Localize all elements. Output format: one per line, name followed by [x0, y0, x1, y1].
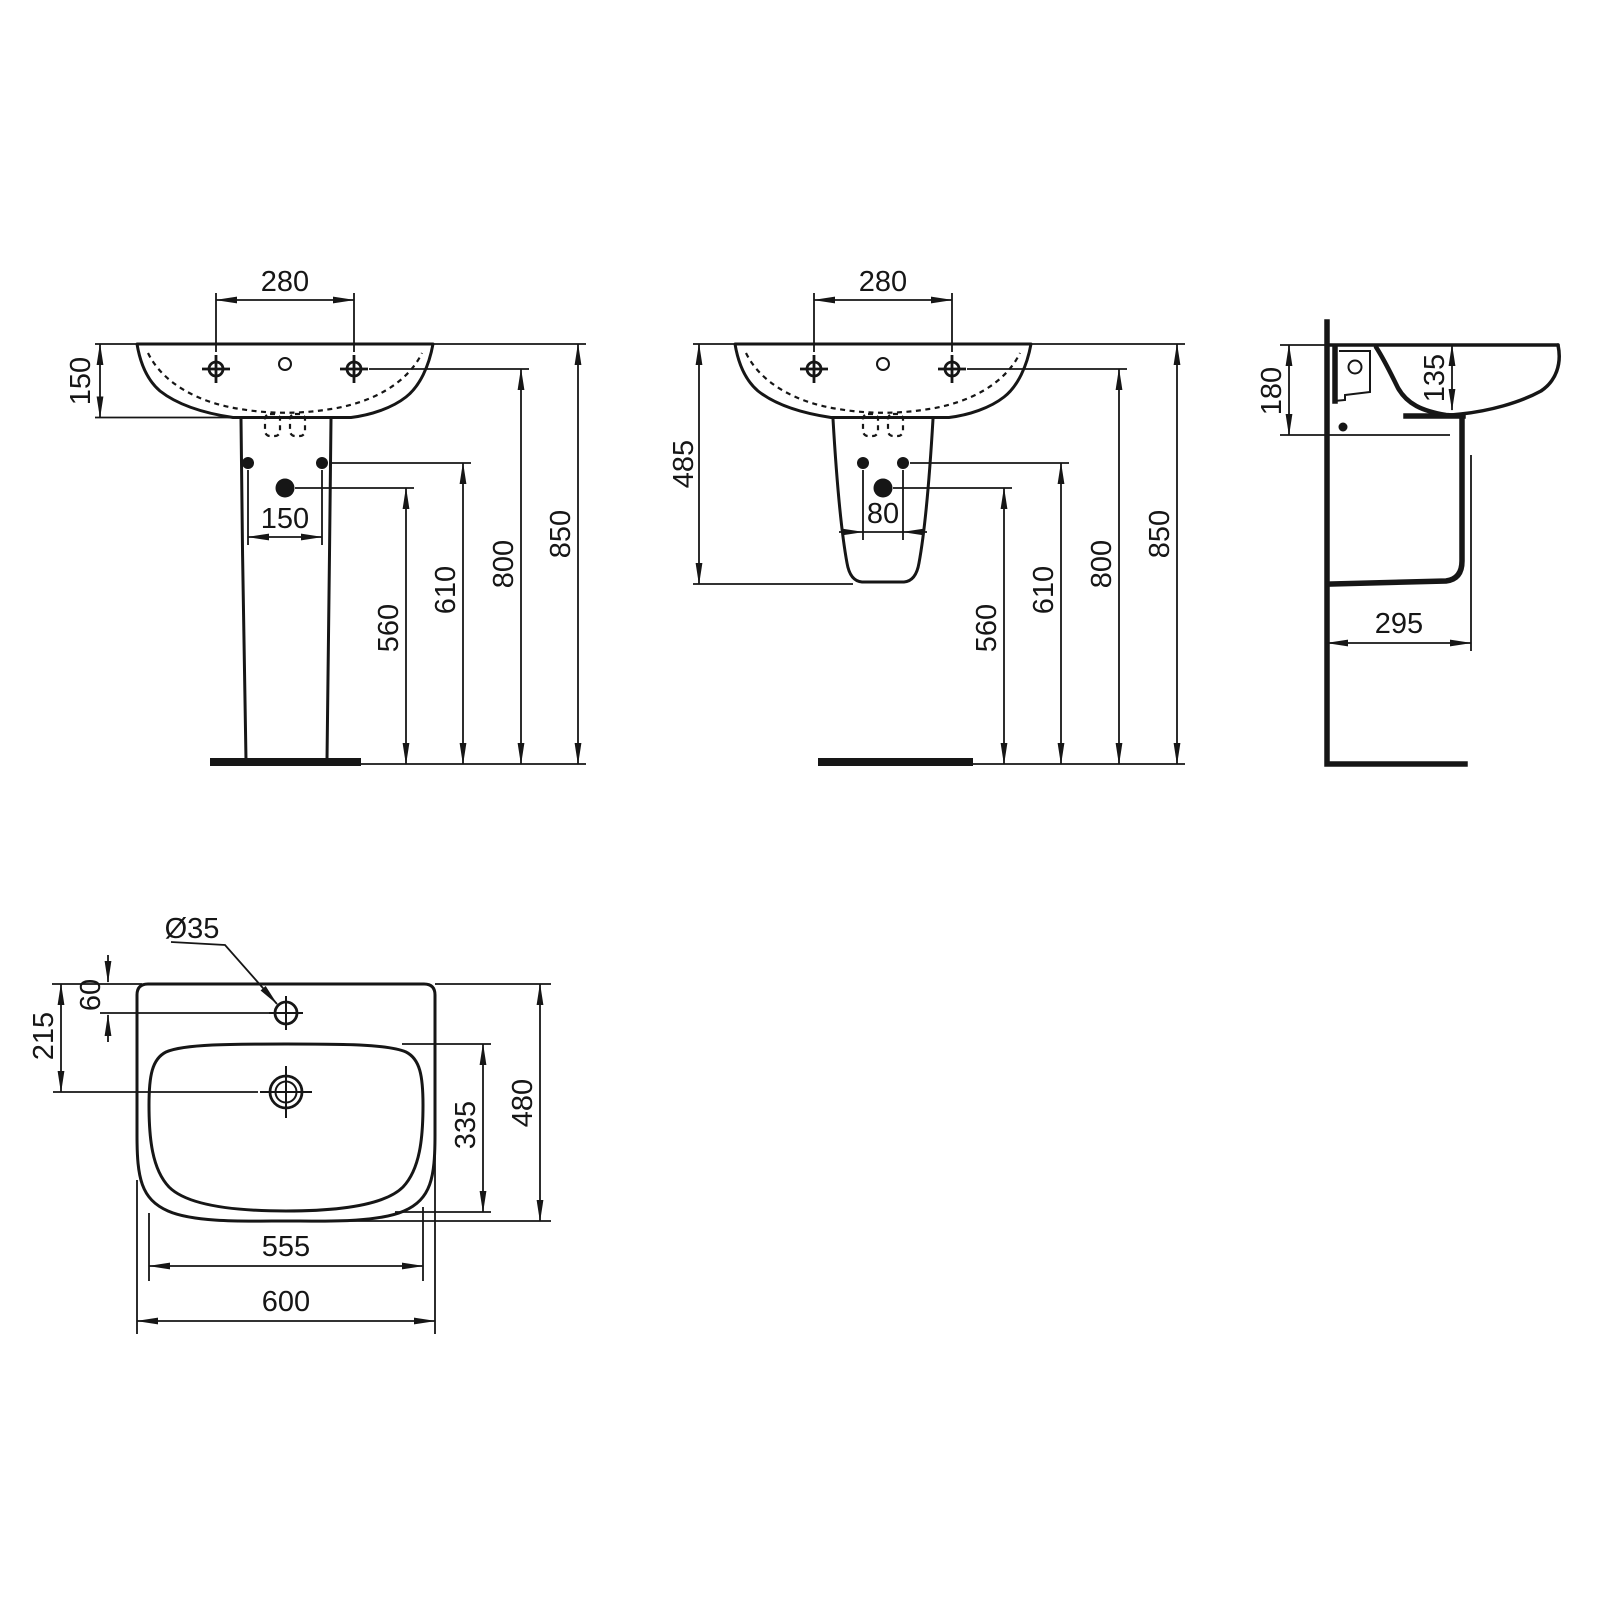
bracket-outline [1334, 351, 1370, 401]
drain-point [874, 479, 893, 498]
drain-cross [260, 1066, 312, 1118]
basin-inner-rim-dashed [148, 353, 422, 413]
view-plan: Ø35 60 215 335 480 555 [28, 913, 551, 1334]
semi-pedestal-profile [1330, 416, 1462, 584]
basin-outline [735, 344, 1031, 418]
dim-label-tap-hole: Ø35 [165, 913, 220, 945]
dim-label-bolt-spacing: 150 [261, 503, 309, 535]
dim-label-drain-height: 560 [971, 604, 1003, 652]
extension-line [693, 344, 853, 584]
fixing-bolt-left [242, 457, 254, 469]
dim-label-bolt-height: 610 [1028, 566, 1060, 614]
tap-hole-left-cross [800, 355, 828, 383]
overflow-hole-icon [877, 358, 889, 370]
dim-label-rim-height: 850 [1144, 510, 1176, 558]
extension-line [95, 344, 234, 418]
dim-label-bowl-length: 335 [450, 1101, 482, 1149]
dim-label-tap-spacing: 280 [859, 266, 907, 298]
dim-label-tap-spacing: 280 [261, 266, 309, 298]
dim-label-tap-offset: 60 [75, 979, 107, 1011]
dim-bowl-depth: 135 [1419, 345, 1452, 410]
dim-label-overall-width: 600 [262, 1286, 310, 1318]
dim-label-semi-depth: 295 [1375, 608, 1423, 640]
basin-inner-rim-dashed [746, 353, 1020, 413]
dim-label-tap-height: 800 [1086, 540, 1118, 588]
dim-label-tap-height: 800 [488, 540, 520, 588]
leader-line [171, 942, 277, 1004]
dim-label-bolt-spacing: 80 [867, 498, 899, 530]
pedestal-left-edge [241, 419, 246, 760]
dim-overall-depth: 480 [290, 984, 551, 1221]
dim-bowl-length: 335 [395, 1044, 491, 1212]
dim-label-drain-height: 560 [373, 604, 405, 652]
overflow-hole-icon [279, 358, 291, 370]
dim-label-drain-offset: 215 [28, 1012, 60, 1060]
dim-label-bolt-height: 610 [430, 566, 462, 614]
fixing-bolt-right [316, 457, 328, 469]
fixing-bolt-left [857, 457, 869, 469]
dim-tap-spacing: 280 [216, 266, 354, 352]
dim-drain-height: 560 [295, 488, 414, 764]
dim-label-bowl-depth: 135 [1419, 354, 1451, 402]
dim-label-bowl-width: 555 [262, 1231, 310, 1263]
view-front-semi-pedestal: 280 485 80 560 610 800 [668, 266, 1185, 764]
dim-semi-height: 485 [668, 344, 853, 584]
tap-hole-right-cross [340, 355, 368, 383]
dim-drain-offset: 215 [28, 984, 258, 1092]
view-front-full-pedestal: 280 150 150 560 610 800 [65, 266, 586, 764]
dim-tap-spacing: 280 [814, 266, 952, 352]
tap-hole-right-cross [938, 355, 966, 383]
dim-semi-depth: 295 [1327, 455, 1471, 651]
dim-label-semi-height: 485 [668, 440, 700, 488]
washbasin-technical-drawing: 280 150 150 560 610 800 [0, 0, 1600, 1600]
tap-hole-left-cross [202, 355, 230, 383]
dim-label-rim-depth: 150 [65, 357, 97, 405]
pedestal-right-edge [327, 419, 331, 760]
dim-drain-height: 560 [893, 488, 1012, 764]
fixing-bolt-right [897, 457, 909, 469]
basin-outline [137, 344, 433, 418]
dim-label-fixing-depth: 180 [1256, 367, 1288, 415]
dim-tap-hole-diameter: Ø35 [165, 913, 277, 1004]
bracket-hole-icon [1349, 361, 1362, 374]
rim-tip-profile [1441, 345, 1559, 416]
drawing-canvas: 280 150 150 560 610 800 [0, 0, 1600, 1600]
dim-label-rim-height: 850 [545, 510, 577, 558]
fixing-bolt-side [1339, 423, 1348, 432]
drain-point [276, 479, 295, 498]
view-side-section: 180 135 295 [1256, 322, 1559, 764]
dim-tap-offset: 60 [52, 955, 272, 1042]
dim-label-overall-depth: 480 [507, 1079, 539, 1127]
